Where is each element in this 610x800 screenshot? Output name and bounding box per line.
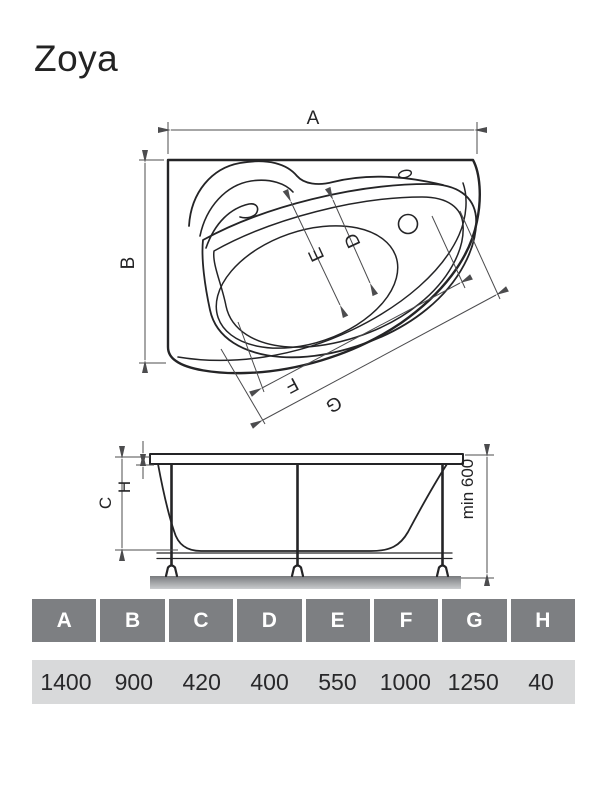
dim-g-label: G	[322, 391, 345, 416]
top-view-drawing: A B E D F G	[0, 0, 610, 445]
bathtub-side-profile	[150, 454, 463, 551]
table-value-cell: 40	[507, 660, 575, 704]
table-header-cell: H	[511, 599, 575, 642]
dim-d-label: D	[341, 230, 366, 251]
table-header-cell: B	[100, 599, 164, 642]
dimension-h: H	[115, 441, 154, 493]
dim-c-label: C	[96, 497, 115, 509]
bathtub-basin-floor	[200, 203, 414, 370]
side-view-drawing: C H min 600	[0, 435, 610, 600]
table-value-cell: 550	[304, 660, 372, 704]
table-header-cell: C	[169, 599, 233, 642]
table-value-cell: 900	[100, 660, 168, 704]
table-value-cell: 1400	[32, 660, 100, 704]
table-value-cell: 1250	[439, 660, 507, 704]
dim-b-label: B	[118, 257, 139, 270]
table-header-cell: D	[237, 599, 301, 642]
dimension-e: E	[291, 202, 340, 305]
dimension-d: D	[333, 200, 370, 283]
dim-e-label: E	[305, 244, 329, 264]
table-header-cell: A	[32, 599, 96, 642]
dimension-table-header-row: A B C D E F G H	[32, 599, 575, 642]
table-header-cell: G	[442, 599, 506, 642]
headrest-contours	[189, 161, 443, 248]
dim-a-label: A	[307, 108, 320, 129]
table-value-cell: 400	[236, 660, 304, 704]
table-value-cell: 1000	[371, 660, 439, 704]
min-height-label: min 600	[458, 459, 477, 519]
dimension-b: B	[118, 160, 166, 363]
dimension-sheet: Zoya A	[0, 0, 610, 800]
table-value-cell: 420	[168, 660, 236, 704]
overflow-icon	[398, 169, 412, 179]
dimension-table-value-row: 1400 900 420 400 550 1000 1250 40	[32, 660, 575, 704]
table-header-cell: E	[306, 599, 370, 642]
dimension-a: A	[168, 108, 477, 154]
table-header-cell: F	[374, 599, 438, 642]
ground-bar	[150, 576, 461, 589]
drain-icon	[399, 215, 418, 234]
support-frame	[157, 464, 452, 576]
dimension-min-height: min 600	[458, 455, 494, 578]
dim-h-label: H	[115, 481, 134, 493]
